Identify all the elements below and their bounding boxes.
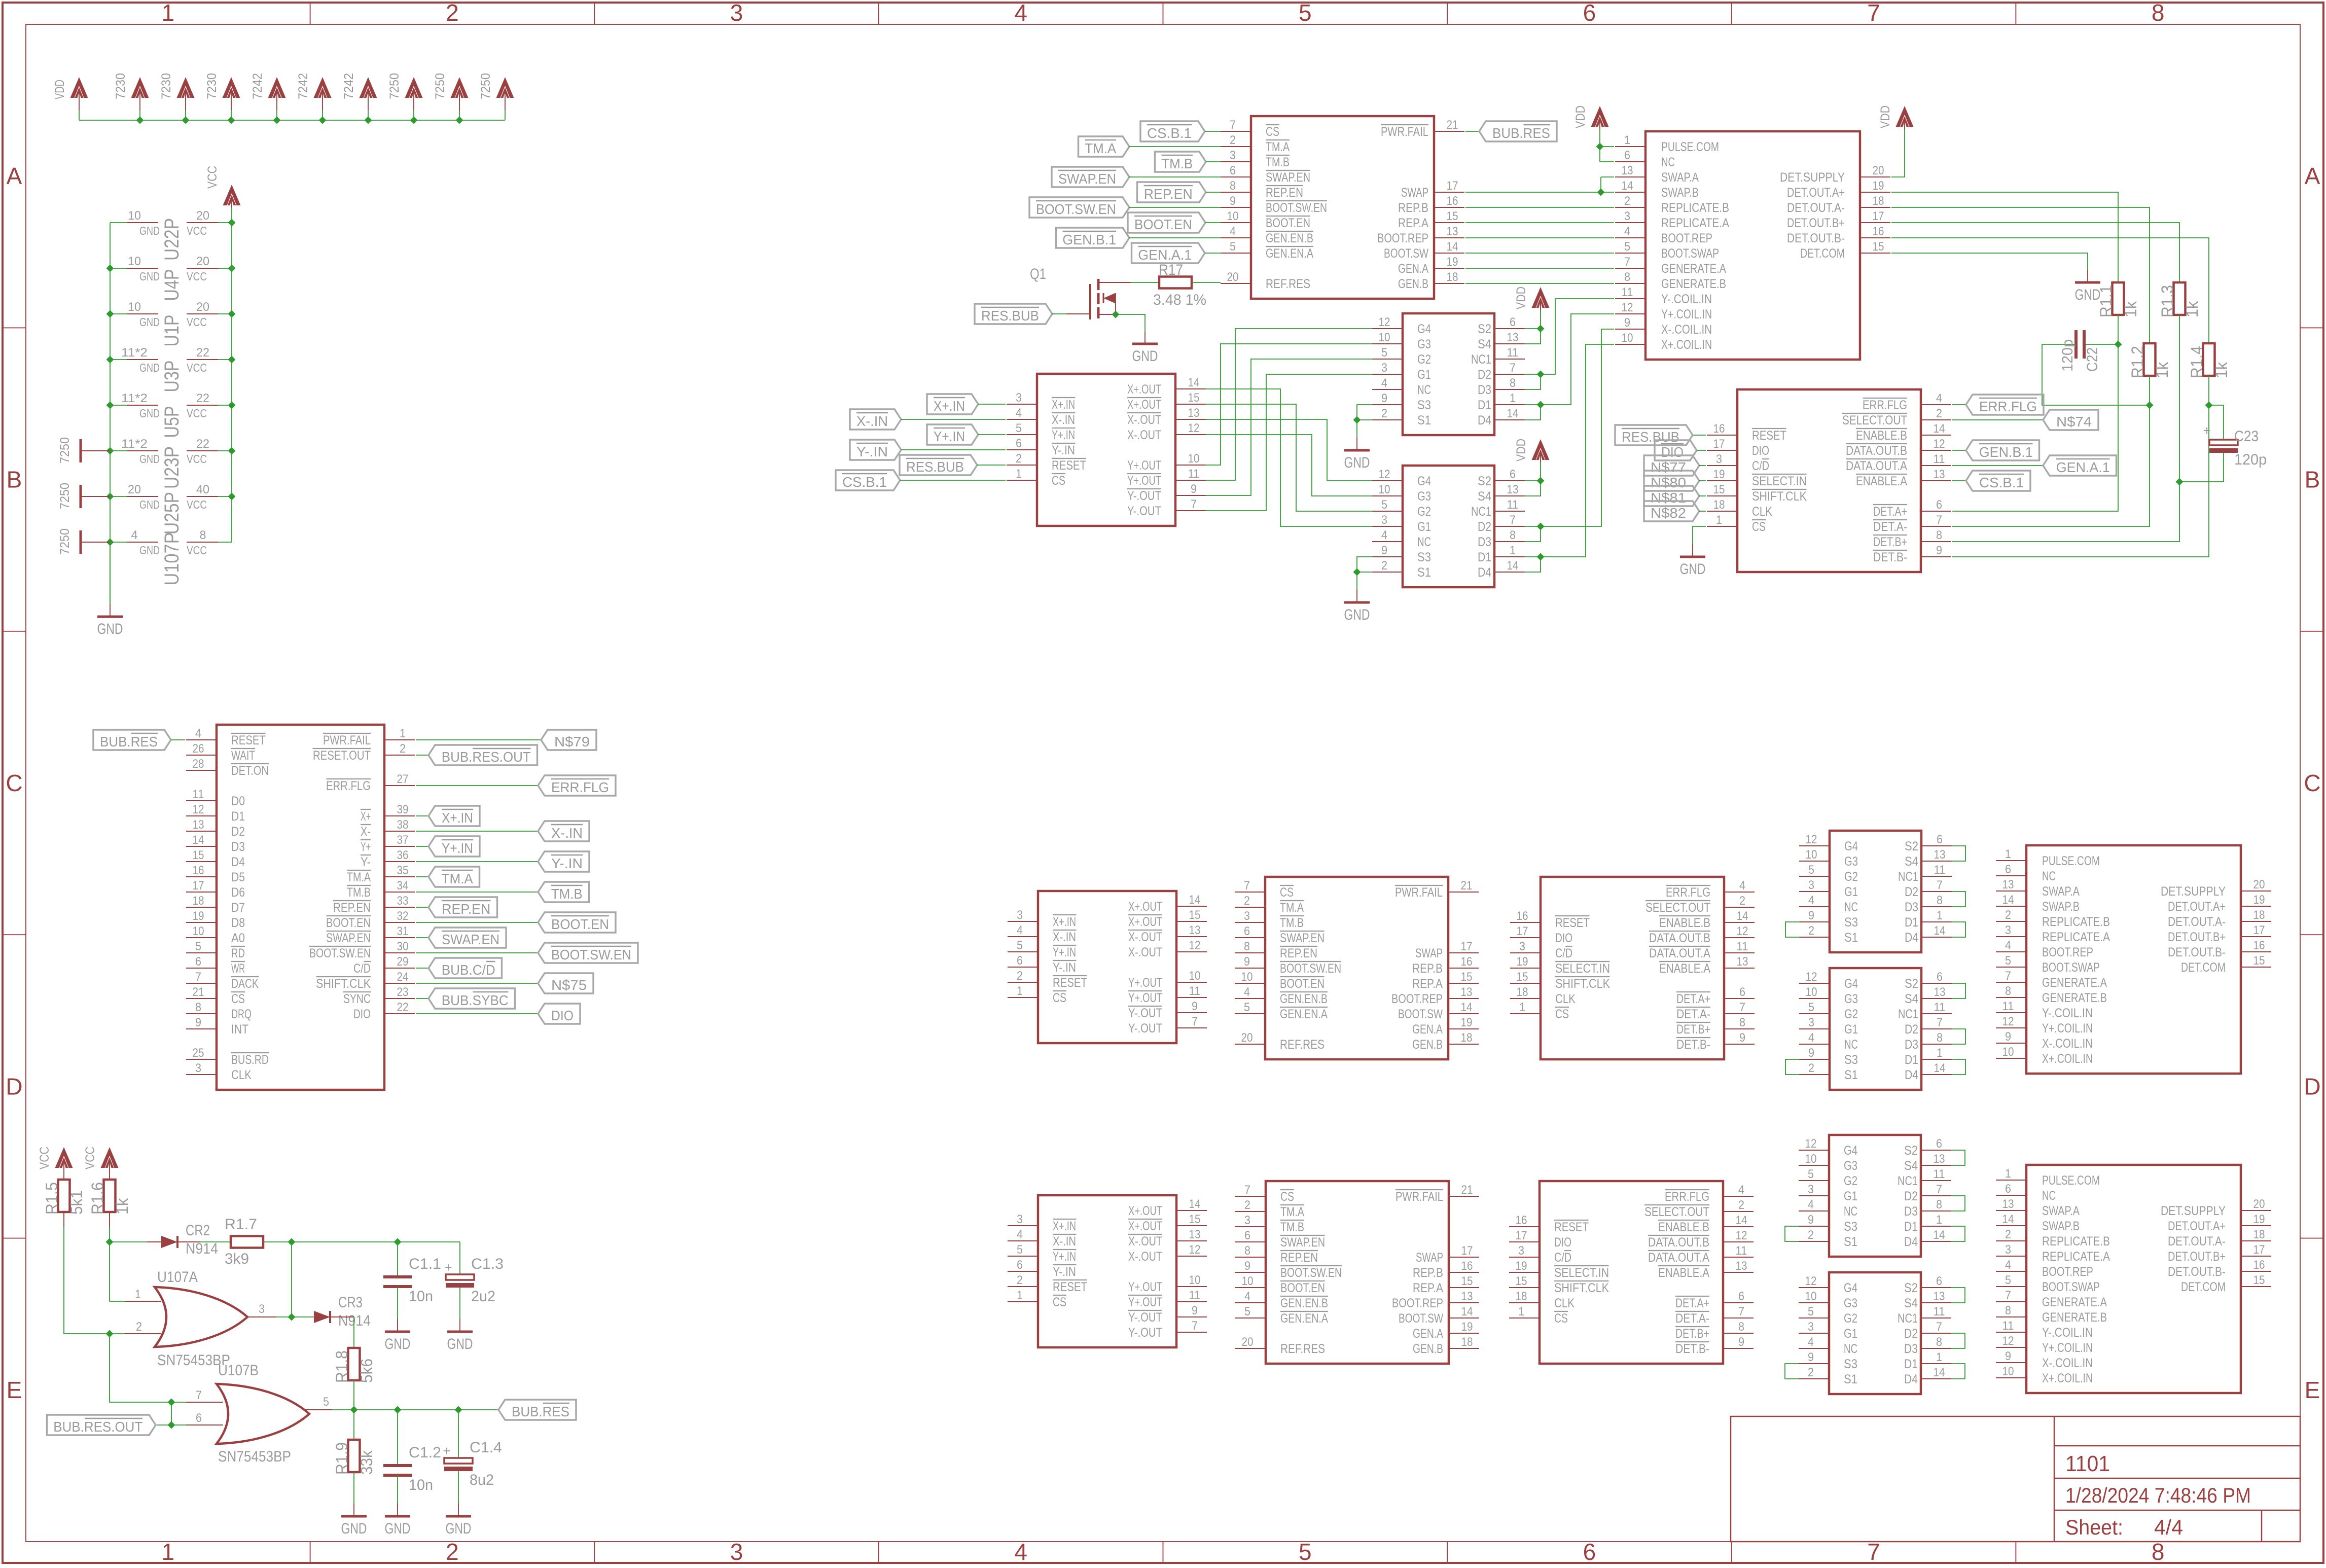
svg-text:GEN.A: GEN.A xyxy=(1413,1327,1443,1341)
svg-text:D1: D1 xyxy=(1905,1053,1918,1067)
svg-text:10: 10 xyxy=(1805,1152,1817,1166)
svg-text:PWR.FAIL: PWR.FAIL xyxy=(323,733,371,747)
svg-text:30: 30 xyxy=(397,940,409,953)
svg-text:Y+.OUT: Y+.OUT xyxy=(1128,1280,1162,1294)
svg-text:10: 10 xyxy=(128,209,141,223)
svg-text:SWAP.A: SWAP.A xyxy=(2042,884,2080,899)
svg-text:4: 4 xyxy=(1739,879,1745,893)
svg-text:S1: S1 xyxy=(1844,1068,1858,1082)
svg-text:CLK: CLK xyxy=(1554,1296,1574,1310)
svg-text:NC1: NC1 xyxy=(1898,870,1918,884)
svg-text:CLK: CLK xyxy=(1555,992,1576,1006)
svg-text:ENABLE.B: ENABLE.B xyxy=(1856,429,1907,443)
svg-text:DATA.OUT.B: DATA.OUT.B xyxy=(1648,1235,1709,1250)
svg-text:R1.9: R1.9 xyxy=(333,1442,351,1475)
svg-text:33: 33 xyxy=(397,894,409,908)
svg-text:S4: S4 xyxy=(1904,1296,1918,1310)
svg-text:DET.OUT.B+: DET.OUT.B+ xyxy=(2168,1250,2226,1264)
svg-text:12: 12 xyxy=(1806,833,1817,846)
svg-text:13: 13 xyxy=(1188,406,1200,420)
svg-text:9: 9 xyxy=(1244,1259,1250,1273)
svg-text:20: 20 xyxy=(196,300,209,314)
svg-text:REPLICATE.A: REPLICATE.A xyxy=(2042,930,2110,944)
svg-text:Y-.IN: Y-.IN xyxy=(1052,443,1075,457)
svg-text:3: 3 xyxy=(1808,1320,1814,1334)
svg-text:8: 8 xyxy=(1936,1198,1942,1211)
svg-text:DET.B-: DET.B- xyxy=(1873,550,1907,564)
svg-text:18: 18 xyxy=(2253,908,2265,922)
svg-text:25: 25 xyxy=(193,1046,204,1060)
svg-text:12: 12 xyxy=(193,803,204,816)
svg-text:15: 15 xyxy=(1447,209,1458,223)
svg-text:4: 4 xyxy=(1017,1228,1023,1241)
svg-text:20: 20 xyxy=(196,255,209,268)
svg-text:NC: NC xyxy=(1661,155,1675,169)
svg-text:8: 8 xyxy=(1244,1244,1250,1258)
svg-text:X-: X- xyxy=(361,825,371,839)
svg-text:4: 4 xyxy=(1014,0,1027,26)
svg-text:4/4: 4/4 xyxy=(2154,1515,2183,1539)
svg-text:GENERATE.A: GENERATE.A xyxy=(2042,1295,2107,1309)
svg-text:D2: D2 xyxy=(1478,520,1491,534)
svg-text:17: 17 xyxy=(1713,437,1725,451)
svg-text:GND: GND xyxy=(139,315,160,329)
svg-text:ERR.FLG: ERR.FLG xyxy=(326,779,371,793)
svg-text:2: 2 xyxy=(136,1320,142,1334)
svg-text:REF.RES: REF.RES xyxy=(1280,1038,1325,1052)
svg-text:DIO: DIO xyxy=(1752,444,1769,458)
svg-text:5: 5 xyxy=(1381,498,1387,512)
svg-text:SWAP.A: SWAP.A xyxy=(2042,1204,2080,1218)
svg-text:2: 2 xyxy=(1624,194,1630,208)
svg-text:15: 15 xyxy=(1188,391,1200,405)
svg-text:6: 6 xyxy=(2005,863,2011,876)
svg-text:PULSE.COM: PULSE.COM xyxy=(2042,854,2100,868)
svg-text:REF.RES: REF.RES xyxy=(1280,1342,1325,1356)
svg-text:9: 9 xyxy=(1808,1046,1814,1060)
svg-text:12: 12 xyxy=(1805,1137,1817,1151)
svg-text:9: 9 xyxy=(1739,1031,1745,1045)
svg-text:3: 3 xyxy=(1808,1183,1814,1196)
svg-text:10: 10 xyxy=(1805,1290,1817,1303)
svg-text:1: 1 xyxy=(1716,513,1722,527)
svg-text:CS: CS xyxy=(1052,474,1065,488)
svg-text:U1P: U1P xyxy=(161,315,183,347)
svg-text:21: 21 xyxy=(1461,879,1473,893)
svg-text:GEN.EN.A: GEN.EN.A xyxy=(1280,1007,1328,1021)
svg-text:6: 6 xyxy=(1583,0,1596,26)
svg-text:BOOT.SWAP: BOOT.SWAP xyxy=(2042,1280,2100,1294)
svg-text:11: 11 xyxy=(1622,286,1633,299)
svg-text:N$82: N$82 xyxy=(1651,505,1686,521)
svg-text:G3: G3 xyxy=(1844,1159,1857,1173)
svg-text:G1: G1 xyxy=(1844,1189,1857,1203)
svg-text:DET.SUPPLY: DET.SUPPLY xyxy=(1780,170,1845,185)
svg-text:9: 9 xyxy=(1808,909,1814,922)
svg-text:PULSE.COM: PULSE.COM xyxy=(2042,1173,2100,1188)
svg-text:6: 6 xyxy=(1017,954,1023,968)
svg-text:6: 6 xyxy=(1936,1137,1942,1151)
svg-text:36: 36 xyxy=(397,848,409,862)
svg-text:S3: S3 xyxy=(1844,1053,1858,1067)
svg-text:DET.B-: DET.B- xyxy=(1676,1038,1710,1052)
svg-text:S4: S4 xyxy=(1478,337,1491,351)
svg-text:D3: D3 xyxy=(231,840,245,854)
svg-text:CS.B.1: CS.B.1 xyxy=(842,474,887,490)
svg-text:5: 5 xyxy=(323,1395,329,1409)
svg-text:X+.OUT: X+.OUT xyxy=(1128,900,1162,914)
svg-text:GND: GND xyxy=(1132,348,1158,365)
svg-text:Y-.OUT: Y-.OUT xyxy=(1127,489,1161,503)
svg-text:S1: S1 xyxy=(1417,413,1431,427)
svg-text:X+.OUT: X+.OUT xyxy=(1127,382,1161,397)
svg-text:GND: GND xyxy=(139,544,160,557)
svg-text:C1.2: C1.2 xyxy=(409,1444,441,1461)
svg-text:D3: D3 xyxy=(1904,1342,1918,1356)
svg-text:REP.EN: REP.EN xyxy=(1144,186,1193,202)
svg-text:GEN.A.1: GEN.A.1 xyxy=(1138,247,1192,263)
svg-text:DET.A+: DET.A+ xyxy=(1873,505,1907,519)
svg-text:BOOT.SW.EN: BOOT.SW.EN xyxy=(1280,1266,1342,1280)
svg-text:4: 4 xyxy=(1808,1198,1814,1211)
svg-text:4: 4 xyxy=(2005,939,2011,952)
svg-text:5: 5 xyxy=(2005,1273,2011,1287)
svg-text:SWAP.EN: SWAP.EN xyxy=(1280,931,1325,945)
svg-text:SWAP.B: SWAP.B xyxy=(1661,186,1699,200)
svg-text:BUS.RD: BUS.RD xyxy=(231,1053,269,1067)
svg-text:DET.A-: DET.A- xyxy=(1873,520,1907,534)
svg-text:3: 3 xyxy=(2005,923,2011,937)
svg-text:3: 3 xyxy=(195,1061,201,1075)
svg-text:VCC: VCC xyxy=(38,1147,52,1169)
svg-text:24: 24 xyxy=(397,970,409,984)
svg-text:RES.BUB: RES.BUB xyxy=(981,308,1039,324)
svg-text:C23: C23 xyxy=(2234,428,2259,445)
svg-text:BOOT.EN: BOOT.EN xyxy=(326,916,371,930)
svg-text:7242: 7242 xyxy=(342,73,356,99)
svg-text:TM.B: TM.B xyxy=(1280,916,1304,930)
svg-text:CS: CS xyxy=(1752,520,1766,534)
svg-text:N$77: N$77 xyxy=(1651,459,1686,475)
svg-text:TM.A: TM.A xyxy=(1280,901,1304,915)
svg-text:1: 1 xyxy=(1017,1289,1023,1302)
svg-text:2: 2 xyxy=(1808,1228,1814,1242)
svg-text:DET.OUT.B+: DET.OUT.B+ xyxy=(2168,930,2226,944)
svg-text:S3: S3 xyxy=(1417,550,1431,564)
svg-text:GEN.B: GEN.B xyxy=(1398,277,1428,291)
svg-text:Y-.IN: Y-.IN xyxy=(1053,960,1076,975)
svg-text:S3: S3 xyxy=(1417,398,1431,412)
svg-text:3.48 1%: 3.48 1% xyxy=(1153,292,1206,308)
svg-text:RESET: RESET xyxy=(1052,458,1086,473)
svg-text:23: 23 xyxy=(397,985,409,999)
svg-text:3: 3 xyxy=(1016,391,1022,405)
svg-text:18: 18 xyxy=(1461,1031,1473,1045)
svg-text:10: 10 xyxy=(128,255,141,268)
svg-text:15: 15 xyxy=(1461,1274,1473,1288)
svg-text:N914: N914 xyxy=(338,1312,371,1329)
svg-text:G4: G4 xyxy=(1844,1144,1857,1158)
svg-text:14: 14 xyxy=(1507,407,1519,420)
svg-text:2: 2 xyxy=(1739,894,1745,908)
svg-text:VDD: VDD xyxy=(1878,105,1892,128)
svg-text:X-.OUT: X-.OUT xyxy=(1128,930,1162,944)
svg-text:S3: S3 xyxy=(1844,1220,1857,1234)
svg-text:DET.OUT.A+: DET.OUT.A+ xyxy=(2168,1219,2226,1233)
svg-text:R1.2: R1.2 xyxy=(2128,346,2146,378)
svg-text:DACK: DACK xyxy=(231,977,259,991)
svg-text:Y+.COIL.IN: Y+.COIL.IN xyxy=(2042,1341,2093,1355)
svg-text:20: 20 xyxy=(1873,164,1884,177)
svg-text:1101: 1101 xyxy=(2065,1451,2110,1476)
svg-text:18: 18 xyxy=(1873,194,1884,208)
svg-text:4: 4 xyxy=(1014,1539,1027,1565)
svg-text:BUB.RES: BUB.RES xyxy=(100,734,158,750)
svg-text:2: 2 xyxy=(1381,559,1387,573)
svg-text:13: 13 xyxy=(2002,1197,2014,1211)
svg-text:DRQ: DRQ xyxy=(231,1007,252,1021)
svg-text:10: 10 xyxy=(1227,209,1239,223)
svg-text:14: 14 xyxy=(1934,1061,1946,1075)
svg-text:N$79: N$79 xyxy=(554,734,590,750)
svg-text:RESET: RESET xyxy=(1554,1220,1589,1234)
svg-text:7: 7 xyxy=(1867,1539,1880,1565)
svg-text:5k1: 5k1 xyxy=(67,1190,86,1215)
svg-text:D: D xyxy=(2304,1073,2320,1099)
svg-text:PWR.FAIL: PWR.FAIL xyxy=(1381,125,1428,139)
svg-text:R1.7: R1.7 xyxy=(225,1216,257,1233)
svg-text:U25P: U25P xyxy=(161,492,183,534)
svg-text:X-.OUT: X-.OUT xyxy=(1127,413,1161,427)
svg-text:6: 6 xyxy=(1583,1539,1596,1565)
svg-text:4: 4 xyxy=(1381,376,1387,390)
svg-text:REP.A: REP.A xyxy=(1398,216,1428,230)
svg-text:5: 5 xyxy=(1299,0,1312,26)
svg-text:GND: GND xyxy=(97,621,123,637)
svg-text:28: 28 xyxy=(193,757,204,771)
svg-text:GND: GND xyxy=(1344,607,1370,623)
svg-text:7: 7 xyxy=(2005,969,2011,983)
svg-text:Y+.OUT: Y+.OUT xyxy=(1128,976,1162,990)
svg-text:N$75: N$75 xyxy=(551,977,587,993)
svg-text:9: 9 xyxy=(2005,1030,2011,1044)
svg-text:CS.B.1: CS.B.1 xyxy=(1147,125,1192,141)
svg-text:15: 15 xyxy=(1516,1274,1527,1288)
svg-text:DET.SUPPLY: DET.SUPPLY xyxy=(2161,884,2226,899)
svg-text:18: 18 xyxy=(1517,985,1528,999)
svg-text:DET.SUPPLY: DET.SUPPLY xyxy=(2161,1204,2226,1218)
svg-text:R1.6: R1.6 xyxy=(88,1182,106,1215)
svg-text:U23P: U23P xyxy=(161,446,183,489)
svg-text:16: 16 xyxy=(2253,1258,2265,1272)
svg-text:18: 18 xyxy=(1461,1335,1473,1349)
svg-text:13: 13 xyxy=(1934,848,1946,862)
svg-text:7: 7 xyxy=(196,1388,202,1402)
svg-text:DATA.OUT.A: DATA.OUT.A xyxy=(1846,459,1907,473)
svg-text:11: 11 xyxy=(1507,346,1519,360)
svg-text:X+.IN: X+.IN xyxy=(1053,1219,1076,1233)
svg-text:C/D: C/D xyxy=(1555,946,1572,960)
svg-text:BOOT.SWAP: BOOT.SWAP xyxy=(1661,246,1719,261)
svg-text:Y-.COIL.IN: Y-.COIL.IN xyxy=(2042,1006,2093,1020)
svg-text:22: 22 xyxy=(397,1001,409,1014)
svg-text:4: 4 xyxy=(2005,1258,2011,1272)
svg-text:16: 16 xyxy=(1873,225,1884,238)
svg-text:8: 8 xyxy=(195,1001,201,1014)
svg-text:BUB.C/D: BUB.C/D xyxy=(442,962,495,978)
svg-text:D3: D3 xyxy=(1478,383,1491,397)
svg-text:3: 3 xyxy=(1716,452,1722,466)
svg-text:9: 9 xyxy=(2005,1349,2011,1363)
svg-text:G4: G4 xyxy=(1417,322,1431,336)
svg-text:C1.4: C1.4 xyxy=(470,1439,502,1456)
svg-text:Y+.IN: Y+.IN xyxy=(1053,1250,1076,1264)
svg-text:D2: D2 xyxy=(1905,1022,1918,1037)
svg-text:INT: INT xyxy=(231,1022,248,1037)
svg-text:S2: S2 xyxy=(1904,1144,1918,1158)
svg-text:DET.ON: DET.ON xyxy=(231,764,269,778)
svg-text:BOOT.EN: BOOT.EN xyxy=(1280,977,1325,991)
svg-text:BOOT.REP: BOOT.REP xyxy=(2042,945,2093,959)
svg-text:CR2: CR2 xyxy=(186,1222,210,1239)
svg-text:GND: GND xyxy=(447,1336,473,1352)
svg-text:X+.IN: X+.IN xyxy=(1053,915,1076,929)
svg-text:D: D xyxy=(6,1073,22,1099)
svg-text:14: 14 xyxy=(1189,893,1201,907)
svg-text:8: 8 xyxy=(2152,0,2165,26)
svg-text:20: 20 xyxy=(1227,270,1239,284)
svg-text:31: 31 xyxy=(397,924,409,938)
svg-text:17: 17 xyxy=(1447,179,1458,193)
svg-text:2: 2 xyxy=(1738,1198,1744,1212)
svg-text:12: 12 xyxy=(1189,939,1201,952)
svg-text:REP.A: REP.A xyxy=(1412,977,1443,991)
svg-text:SELECT.IN: SELECT.IN xyxy=(1555,961,1610,976)
svg-text:7: 7 xyxy=(1937,878,1943,892)
svg-text:RESET: RESET xyxy=(1555,916,1590,930)
svg-text:Y-.IN: Y-.IN xyxy=(551,856,583,871)
svg-text:6: 6 xyxy=(2005,1182,2011,1196)
svg-text:2: 2 xyxy=(2005,908,2011,922)
svg-text:12: 12 xyxy=(1737,924,1748,938)
svg-text:11: 11 xyxy=(1737,940,1748,953)
svg-text:DET.OUT.A-: DET.OUT.A- xyxy=(2168,915,2226,929)
svg-text:4: 4 xyxy=(1230,225,1236,238)
svg-text:2: 2 xyxy=(1244,1198,1250,1212)
svg-text:13: 13 xyxy=(2002,878,2014,892)
svg-text:GEN.B: GEN.B xyxy=(1413,1342,1443,1356)
svg-text:8: 8 xyxy=(2005,984,2011,998)
svg-text:34: 34 xyxy=(397,879,409,893)
svg-text:11: 11 xyxy=(1934,863,1946,877)
svg-text:8: 8 xyxy=(2005,1304,2011,1317)
svg-text:DET.OUT.A-: DET.OUT.A- xyxy=(1787,201,1845,215)
svg-text:1: 1 xyxy=(1017,984,1023,998)
svg-text:DATA.OUT.A: DATA.OUT.A xyxy=(1649,946,1710,960)
svg-text:DATA.OUT.B: DATA.OUT.B xyxy=(1846,444,1907,458)
svg-text:14: 14 xyxy=(1188,376,1200,389)
svg-text:11: 11 xyxy=(1934,1167,1945,1181)
svg-text:D7: D7 xyxy=(231,901,245,915)
svg-text:Y-.OUT: Y-.OUT xyxy=(1127,504,1161,518)
svg-text:8: 8 xyxy=(200,528,206,542)
svg-text:3: 3 xyxy=(1381,361,1387,375)
svg-text:X+: X+ xyxy=(361,809,371,824)
svg-text:GEN.B.1: GEN.B.1 xyxy=(1062,232,1116,247)
svg-text:RESET: RESET xyxy=(231,733,266,747)
svg-text:REPLICATE.B: REPLICATE.B xyxy=(2042,915,2110,929)
svg-text:SWAP.EN: SWAP.EN xyxy=(1280,1235,1325,1250)
svg-text:X-.IN: X-.IN xyxy=(1053,1234,1076,1249)
svg-text:19: 19 xyxy=(2253,1213,2265,1226)
svg-text:14: 14 xyxy=(1447,240,1458,254)
svg-text:18: 18 xyxy=(2253,1228,2265,1241)
svg-text:18: 18 xyxy=(193,894,204,908)
svg-text:VCC: VCC xyxy=(187,498,207,511)
svg-text:BUB.RES: BUB.RES xyxy=(1492,125,1550,141)
svg-text:7: 7 xyxy=(1191,497,1197,511)
svg-text:16: 16 xyxy=(1447,194,1458,208)
svg-text:20: 20 xyxy=(2253,1197,2265,1211)
svg-text:1: 1 xyxy=(1510,544,1516,557)
svg-text:CS: CS xyxy=(1554,1311,1568,1326)
svg-text:5: 5 xyxy=(2005,954,2011,968)
svg-text:ERR.FLG: ERR.FLG xyxy=(1665,1190,1709,1204)
svg-text:S1: S1 xyxy=(1844,1235,1857,1249)
svg-text:A0: A0 xyxy=(231,931,245,945)
svg-text:10: 10 xyxy=(2002,1045,2014,1059)
svg-text:REP.A: REP.A xyxy=(1413,1281,1443,1295)
svg-text:5: 5 xyxy=(1299,1539,1312,1565)
svg-text:16: 16 xyxy=(1517,909,1528,923)
svg-text:9: 9 xyxy=(1808,1213,1814,1227)
svg-text:REP.EN: REP.EN xyxy=(1280,946,1317,960)
svg-text:6: 6 xyxy=(1937,970,1943,984)
svg-text:GND: GND xyxy=(385,1336,411,1352)
svg-text:14: 14 xyxy=(1507,559,1519,573)
svg-text:15: 15 xyxy=(1713,483,1725,496)
svg-text:BOOT.SW: BOOT.SW xyxy=(1384,246,1428,261)
svg-text:2: 2 xyxy=(1016,452,1022,466)
svg-text:X+.IN: X+.IN xyxy=(1052,398,1075,412)
svg-text:7: 7 xyxy=(1739,1001,1745,1014)
svg-text:VDD: VDD xyxy=(1514,287,1528,309)
svg-text:15: 15 xyxy=(2253,954,2265,968)
svg-text:1: 1 xyxy=(1936,1350,1942,1364)
svg-text:SHIFT.CLK: SHIFT.CLK xyxy=(1555,977,1610,991)
svg-text:1: 1 xyxy=(2005,1167,2011,1181)
svg-text:R1.5: R1.5 xyxy=(43,1182,61,1215)
svg-text:D2: D2 xyxy=(1904,1327,1918,1341)
svg-text:X+.IN: X+.IN xyxy=(442,810,473,826)
svg-text:E: E xyxy=(7,1377,22,1403)
svg-text:1k: 1k xyxy=(2122,301,2140,317)
svg-text:16: 16 xyxy=(2253,939,2265,952)
svg-text:7: 7 xyxy=(1192,1015,1198,1028)
svg-text:13: 13 xyxy=(1622,164,1633,177)
svg-text:GND: GND xyxy=(139,452,160,466)
svg-text:7250: 7250 xyxy=(387,73,402,99)
svg-text:CR3: CR3 xyxy=(338,1294,363,1311)
svg-text:11*2: 11*2 xyxy=(121,391,148,405)
svg-text:BOOT.EN: BOOT.EN xyxy=(1266,216,1310,230)
svg-text:3: 3 xyxy=(2005,1243,2011,1257)
svg-text:X-.COIL.IN: X-.COIL.IN xyxy=(1661,323,1712,337)
svg-text:SN75453BP: SN75453BP xyxy=(218,1448,291,1465)
svg-text:C/D: C/D xyxy=(353,961,371,976)
svg-text:11: 11 xyxy=(1934,1305,1945,1318)
svg-text:9: 9 xyxy=(1381,544,1387,557)
